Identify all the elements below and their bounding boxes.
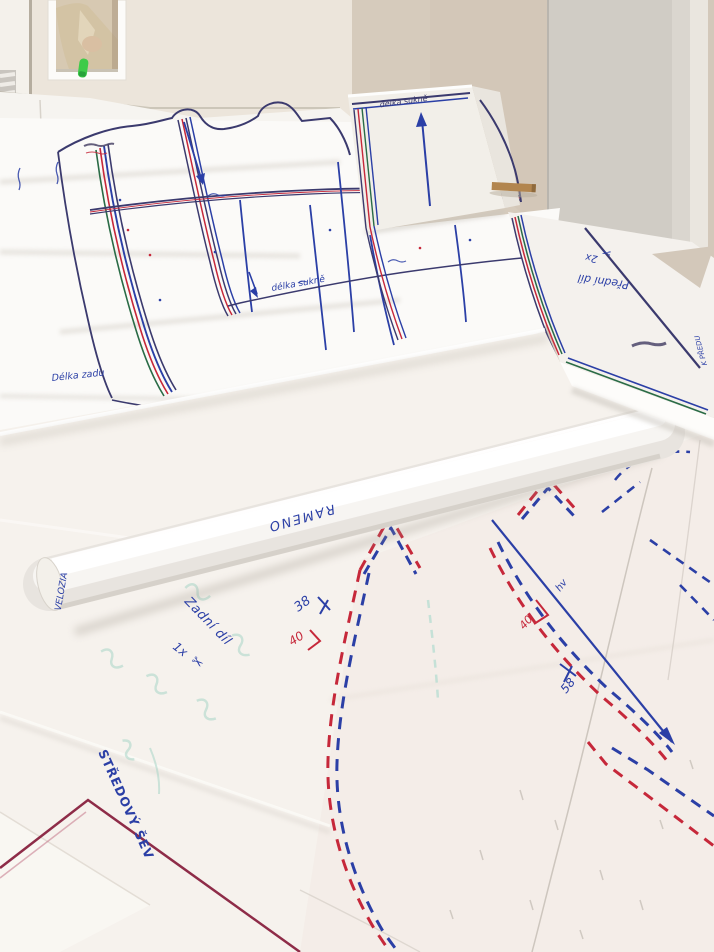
label-front-piece-qty: 2x xyxy=(584,251,598,264)
pattern-photo: délka sukně Délka zadu xyxy=(0,0,714,952)
pattern-photo-canvas: délka sukně Délka zadu xyxy=(0,0,714,952)
